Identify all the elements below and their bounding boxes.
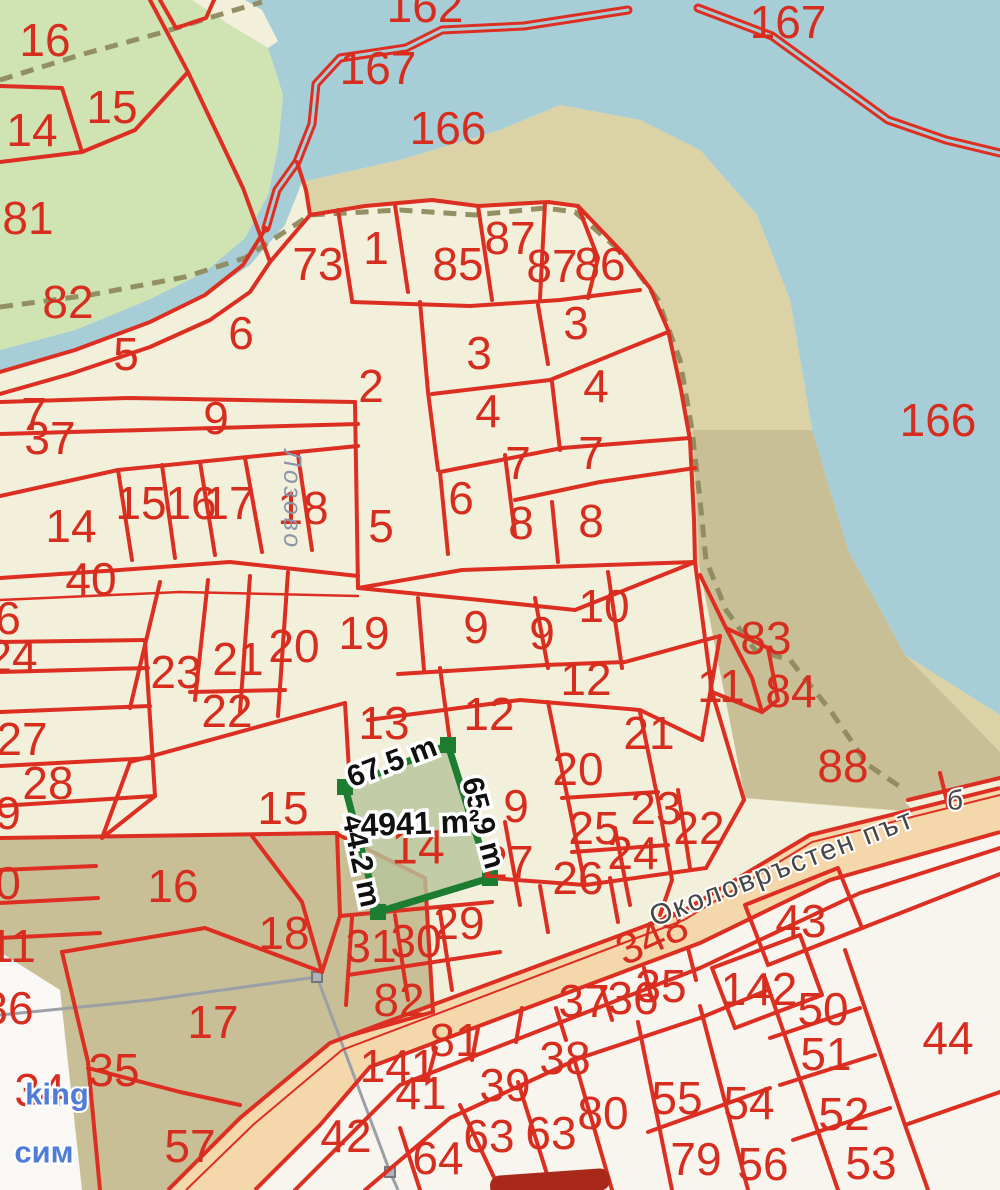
parcel-number-label: 15 <box>115 477 166 529</box>
parcel-number-label: 12 <box>463 688 514 740</box>
parcel-number-label: 14 <box>6 104 57 156</box>
parcel-number-label: 63 <box>463 1110 514 1162</box>
parcel-number-label: 4 <box>475 385 501 437</box>
parcel-number-label: 8 <box>508 497 534 549</box>
parcel-number-label: 35 <box>88 1044 139 1096</box>
parcel-number-label: 23 <box>150 646 201 698</box>
parcel-number-label: 20 <box>268 620 319 672</box>
parcel-number-label: 7 <box>505 437 531 489</box>
parcel-number-label: 18 <box>258 907 309 959</box>
parcel-number-label: 52 <box>818 1088 869 1140</box>
parcel-number-label: 15 <box>86 81 137 133</box>
parcel-number-label: 8 <box>578 495 604 547</box>
parcel-number-label: 51 <box>800 1028 851 1080</box>
parcel-number-label: 53 <box>845 1137 896 1189</box>
parcel-number-label: 42 <box>320 1110 371 1162</box>
parcel-number-label: 24 <box>607 827 658 879</box>
parcel-number-label: 20 <box>552 743 603 795</box>
parcel-number-label: 3 <box>563 297 589 349</box>
parcel-number-label: 11 <box>697 660 745 712</box>
parcel-number-label: 12 <box>560 653 611 705</box>
parcel-number-label: 167 <box>340 42 417 94</box>
parcel-number-label: 82 <box>42 276 93 328</box>
parcel-number-label: 19 <box>338 607 389 659</box>
poi-label: king <box>25 1077 89 1112</box>
parcel-number-label: 28 <box>22 757 73 809</box>
parcel-number-label: 6 <box>228 307 254 359</box>
parcel-number-label: 31 <box>345 920 396 972</box>
parcel-number-label: 10 <box>578 580 629 632</box>
parcel-number-label: 57 <box>164 1120 215 1172</box>
parcel-number-label: 81 <box>429 1014 480 1066</box>
parcel-number-label: 21 <box>623 707 674 759</box>
parcel-number-label: 166 <box>900 394 977 446</box>
parcel-number-label: 73 <box>292 238 343 290</box>
parcel-number-label: 9 <box>203 392 229 444</box>
parcel-number-label: 85 <box>432 238 483 290</box>
parcel-number-label: 1 <box>363 222 389 274</box>
parcel-number-label: 16 <box>19 14 70 66</box>
parcel-number-label: 39 <box>479 1059 530 1111</box>
measure-vertex-handle[interactable] <box>440 737 456 753</box>
parcel-number-label: 162 <box>387 0 464 32</box>
parcel-number-label: 17 <box>187 996 238 1048</box>
parcel-number-label: 38 <box>539 1032 590 1084</box>
parcel-number-label: 166 <box>410 102 487 154</box>
parcel-number-label: 63 <box>525 1107 576 1159</box>
parcel-number-label: 87 <box>526 240 577 292</box>
parcel-number-label: 84 <box>765 665 816 717</box>
parcel-number-label: 37 <box>558 975 609 1027</box>
parcel-number-label: 37 <box>24 412 75 464</box>
parcel-number-label: 6 <box>0 592 21 644</box>
parcel-number-label: 26 <box>552 852 603 904</box>
parcel-number-label: 29 <box>433 897 484 949</box>
parcel-number-label: 56 <box>737 1138 788 1190</box>
parcel-number-label: 36 <box>0 982 34 1034</box>
parcel-number-label: 81 <box>2 192 53 244</box>
parcel-number-label: 14 <box>45 500 96 552</box>
parcel-number-label: 83 <box>740 612 791 664</box>
parcel-number-label: 40 <box>65 553 116 605</box>
parcel-number-label: 22 <box>201 685 252 737</box>
parcel-number-label: 64 <box>412 1132 463 1184</box>
parcel-number-label: 2 <box>358 360 384 412</box>
map-viewport[interactable]: 1614158182737914151617184024627289011361… <box>0 0 1000 1190</box>
parcel-number-label: 55 <box>651 1072 702 1124</box>
parcel-number-label: 4 <box>583 360 609 412</box>
parcel-number-label: 44 <box>922 1012 973 1064</box>
parcel-number-label: 142 <box>721 963 798 1015</box>
parcel-number-label: 54 <box>723 1077 774 1129</box>
parcel-number-label: 21 <box>212 633 263 685</box>
parcel-number-label: 11 <box>0 920 36 972</box>
parcel-number-label: 22 <box>673 802 724 854</box>
road-name-label: б <box>947 785 965 816</box>
parcel-number-label: 88 <box>817 740 868 792</box>
measure-vertex-handle[interactable] <box>370 904 386 920</box>
measure-value-label: 4941 m² <box>360 803 480 843</box>
poi-label: сим <box>14 1135 73 1170</box>
cadastral-map-canvas[interactable]: 1614158182737914151617184024627289011361… <box>0 0 1000 1190</box>
parcel-number-label: 9 <box>463 601 489 653</box>
parcel-number-label: 79 <box>670 1133 721 1185</box>
parcel-number-label: 16 <box>147 860 198 912</box>
parcel-number-label: 41 <box>395 1067 446 1119</box>
parcel-number-label: 80 <box>577 1087 628 1139</box>
parcel-number-label: 43 <box>775 895 826 947</box>
parcel-number-label: 167 <box>750 0 827 48</box>
parcel-number-label: 9 <box>529 607 555 659</box>
parcel-number-label: 5 <box>113 328 139 380</box>
parcel-number-label: 3 <box>466 327 492 379</box>
parcel-number-label: 86 <box>574 238 625 290</box>
parcel-number-label: 9 <box>503 780 529 832</box>
parcel-number-label: 5 <box>368 500 394 552</box>
parcel-number-label: 82 <box>373 974 424 1026</box>
parcel-number-label: 7 <box>578 427 604 479</box>
parcel-number-label: 15 <box>257 782 308 834</box>
parcel-number-label: 6 <box>448 472 474 524</box>
parcel-number-label: 17 <box>203 477 254 529</box>
parcel-number-label: 9 <box>0 787 21 839</box>
water-name-label: Лозово <box>278 448 306 550</box>
parcel-number-label: 0 <box>0 857 21 909</box>
